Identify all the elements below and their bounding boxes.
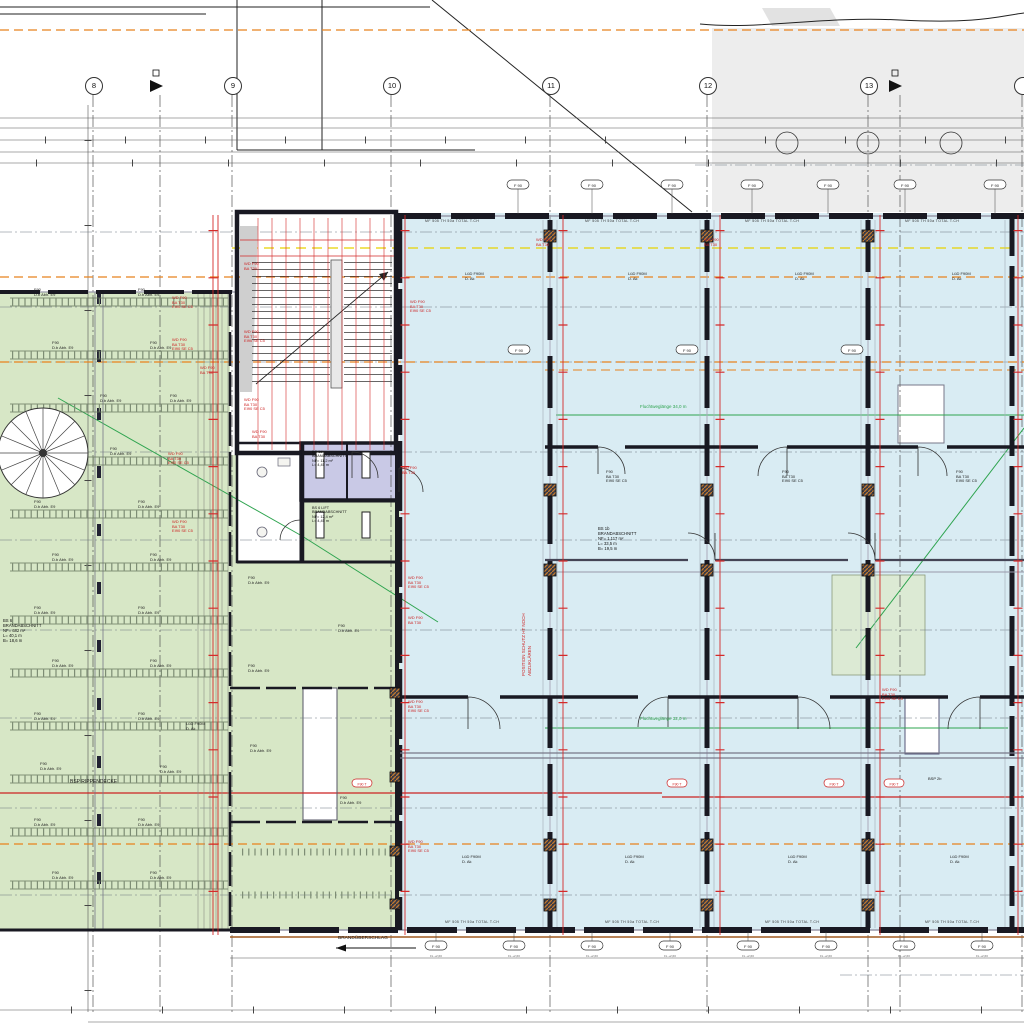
room-label-shaft: BS 1dBRANDABSCHNITT NF= 11,2 m²L= 4,45 m [312,450,347,468]
svg-text:F 90: F 90 [668,183,677,188]
f90-callout: F90D.b Abh. E9 [138,288,159,297]
red-callout: WD F90BA T30 [408,616,423,625]
lued-callout: LüD F90MD. Ak [952,272,971,281]
blk-callout: F90BA T30EI90 SE C5 [956,470,977,484]
red-callout: WD F90BA T30 [252,430,267,439]
f90-callout: F90D.b Abh. E9 [338,624,359,633]
f90-callout: F90D.b Abh. E9 [150,553,171,562]
corridor-box-right [905,698,939,754]
rippendecke-label: BSP RIPPENDECKE [70,780,117,785]
f90-callout: F90D.b Abh. E9 [34,606,55,615]
lued-callout: LüD F90MD. Ak [462,855,481,864]
svg-text:F 90: F 90 [848,348,857,353]
svg-text:F 90: F 90 [748,183,757,188]
wall-tag: MF 505 TH 50a TOTAL T.CH [425,219,479,223]
svg-text:F 90: F 90 [510,944,519,949]
red-callout: WD F90BA T30EI90 SE C5 [244,330,265,344]
red-callout: WD F90BA T30 [704,238,719,247]
wall-tag: MF 505 TH 50a TOTAL T.CH [585,219,639,223]
escape-arrow [336,945,416,952]
svg-text:F 90: F 90 [744,944,753,949]
f90-callout: F90D.b Abh. E9 [40,762,61,771]
lued-callout: LüD F90MD. Ak [628,272,647,281]
red-callout: WD F90BA T30EI90 SE C5 [408,840,429,854]
f90-callout: F90D.b Abh. E9 [52,341,73,350]
blk-callout: F90BA T30EI90 SE C5 [606,470,627,484]
lued-callout: LüD F90MD. Ak [186,722,205,731]
f90-callout: F90D.b Abh. E9 [110,447,131,456]
svg-text:FL +2,60: FL +2,60 [508,954,520,958]
f90-callout: F90D.b Abh. E9 [34,500,55,509]
f90-callout: F90D.b Abh. E9 [34,818,55,827]
red-callout: WD F90BA T30EI90 SE C5 [882,688,903,702]
wall-tag: MF 505 TH 50a TOTAL T.CH [605,920,659,924]
f90-callout: F90D.b Abh. E9 [34,288,55,297]
red-callout: WD F90BA T30 [200,366,215,375]
wall-tag: MF 505 TH 50a TOTAL T.CH [745,219,799,223]
lued-callout: LüD F90MD. Ak [465,272,484,281]
wall-tag: MF 505 TH 50a TOTAL T.CH [925,920,979,924]
f90-callout: F90D.b Abh. E9 [150,871,171,880]
f90-callout: F90D.b Abh. E9 [138,606,159,615]
f90-callout: F90D.b Abh. E9 [52,871,73,880]
f90-callout: F90D.b Abh. E9 [138,712,159,721]
f90-callout: F90D.b Abh. E9 [250,744,271,753]
kitchen-block [303,688,337,820]
svg-text:F90 T: F90 T [672,783,682,787]
svg-text:F 90: F 90 [588,944,597,949]
svg-text:F 90: F 90 [515,348,524,353]
wall-tag: MF 505 TH 50a TOTAL T.CH [905,219,959,223]
lued-callout: LüD F90MD. Ak [795,272,814,281]
svg-text:F 90: F 90 [991,183,1000,188]
red-callout: WD F90BA T30 [402,466,417,475]
floor-plan-canvas: F 90F 90 F 90F 90 F 90F 90 F 90 F 90F 90… [0,0,1024,1024]
svg-text:FL +2,60: FL +2,60 [898,954,910,958]
lued-callout: LüD F90MD. Ak [788,855,807,864]
grid-bubble-12: 12 [699,77,717,95]
svg-text:F90 T: F90 T [889,783,899,787]
svg-text:F 90: F 90 [824,183,833,188]
svg-text:FL +2,60: FL +2,60 [976,954,988,958]
f90-callout: F90D.b Abh. E9 [52,553,73,562]
escape-length-label-2: Fluchtweglänge 32,0 m [640,716,687,721]
svg-text:F 90: F 90 [683,348,692,353]
f90-callout: F90D.b Abh. E9 [340,796,361,805]
svg-text:F 90: F 90 [901,183,910,188]
f90-callout: F90D.b Abh. E9 [150,341,171,350]
svg-text:F90 T: F90 T [829,783,839,787]
red-callout: WD F90BA T30EI90 SE C5 [408,700,429,714]
svg-text:FL +2,60: FL +2,60 [430,954,442,958]
svg-text:FL +2,60: FL +2,60 [742,954,754,958]
escape-length-label-1: Fluchtweglänge 34,0 m [640,404,687,409]
red-callout: WD F90BA T30 [536,238,551,247]
f90-callout: F90D.b Abh. E9 [248,664,269,673]
red-callout: WD F90BA T30EI90 SE C5 [172,338,193,352]
svg-text:FL +2,60: FL +2,60 [664,954,676,958]
grid-bubble-8: 8 [85,77,103,95]
blk-callout: F90BA T30EI90 SE C5 [782,470,803,484]
svg-text:F 90: F 90 [666,944,675,949]
f90-callout: F90D.b Abh. E9 [52,659,73,668]
room-label-center: BS 1bBRANDABSCHNITT NF= 1.117 m²L= 33,5 … [598,526,636,551]
svg-text:F 90: F 90 [900,944,909,949]
spiral-stair [0,408,88,498]
shaft-box-right [898,385,944,443]
red-callout: WD F90BA T30EI90 SE C5 [410,300,431,314]
red-callout: WD F90BA T30EI90 SE C5 [408,576,429,590]
service-room [237,443,303,562]
svg-text:F 90: F 90 [978,944,987,949]
svg-text:F 90: F 90 [432,944,441,949]
f90-callout: F90D.b Abh. E9 [150,659,171,668]
grid-bubble-10: 10 [383,77,401,95]
red-callout: WD F90BA T30 [244,262,259,271]
green-room-right [832,575,925,675]
wall-tag: MF 505 TH 50a TOTAL T.CH [765,920,819,924]
neighbor-roof-shape [762,8,840,26]
room-label-left: BS 6BRANDABSCHNITT NF= 682 m²L= 40,1 m B… [3,618,41,643]
f90-callout: F90D.b Abh. E9 [170,394,191,403]
svg-text:F90 T: F90 T [357,783,367,787]
f90-callout: F90D.b Abh. E9 [138,500,159,509]
grid-bubble-13: 13 [860,77,878,95]
f90-callout: F90D.b Abh. E9 [100,394,121,403]
grid-bubble-11: 11 [542,77,560,95]
svg-text:FL +2,60: FL +2,60 [820,954,832,958]
f90-callout: F90D.b Abh. E9 [248,576,269,585]
lued-callout: LüD F90MD. Ak [625,855,644,864]
brandueberschlag-label: BRANDÜBERSCHLAG [338,936,388,941]
f90-callout: F90D.b Abh. E9 [138,818,159,827]
svg-text:F 90: F 90 [514,183,523,188]
red-callout: WD F90BA T30EI90 SE C5 [172,520,193,534]
grid-bubble-9: 9 [224,77,242,95]
f90-callout: F90D.b Abh. E9 [34,712,55,721]
f90-callout: F90D.b Abh. E9 [160,765,181,774]
red-callout: WD F90BA T30EI90 SE C5 [244,398,265,412]
wall-tag: MF 505 TH 50a TOTAL T.CH [445,920,499,924]
svg-text:FL +2,60: FL +2,60 [586,954,598,958]
section-flag-icon [150,80,163,92]
svg-text:F 90: F 90 [822,944,831,949]
bsp2b-label: BSP 2b [928,776,942,781]
red-callout: WD F90BA T30EI90 SE C5 [172,296,193,310]
rotated-red-note: POSITION SCHUTZ HT NOCH ABZUKLÄREN [521,613,533,676]
svg-text:F 90: F 90 [588,183,597,188]
room-label-lift: BS 6 LIFTBRANDABSCHNITT NF= 12,4 m²L= 4,… [312,506,347,524]
lued-callout: LüD F90MD. Ak [950,855,969,864]
red-callout: WD F90BA T30EI90 SE C5 [168,452,189,466]
